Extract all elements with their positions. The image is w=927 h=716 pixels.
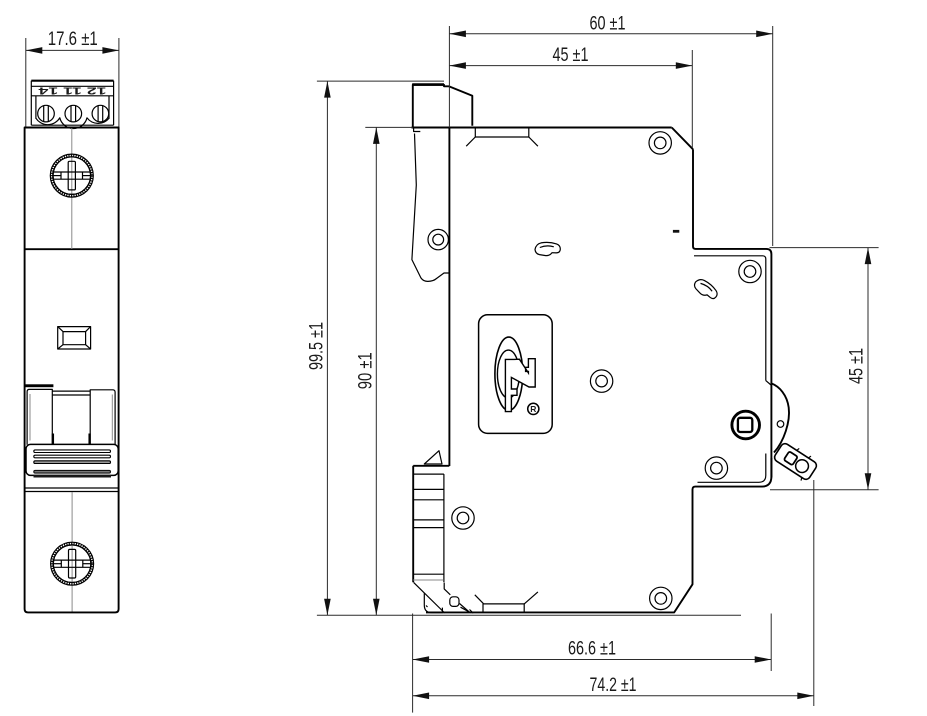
- svg-text:60 ±1: 60 ±1: [590, 13, 626, 34]
- svg-text:17.6 ±1: 17.6 ±1: [48, 29, 98, 50]
- svg-text:66.6 ±1: 66.6 ±1: [568, 639, 616, 660]
- svg-text:45 ±1: 45 ±1: [553, 45, 589, 66]
- svg-text:45 ±1: 45 ±1: [847, 348, 868, 384]
- svg-text:74.2 ±1: 74.2 ±1: [590, 675, 637, 696]
- svg-text:99.5 ±1: 99.5 ±1: [307, 322, 328, 370]
- svg-text:90 ±1: 90 ±1: [356, 352, 377, 389]
- svg-text:R: R: [530, 404, 536, 414]
- svg-text:12 11 14: 12 11 14: [38, 85, 107, 96]
